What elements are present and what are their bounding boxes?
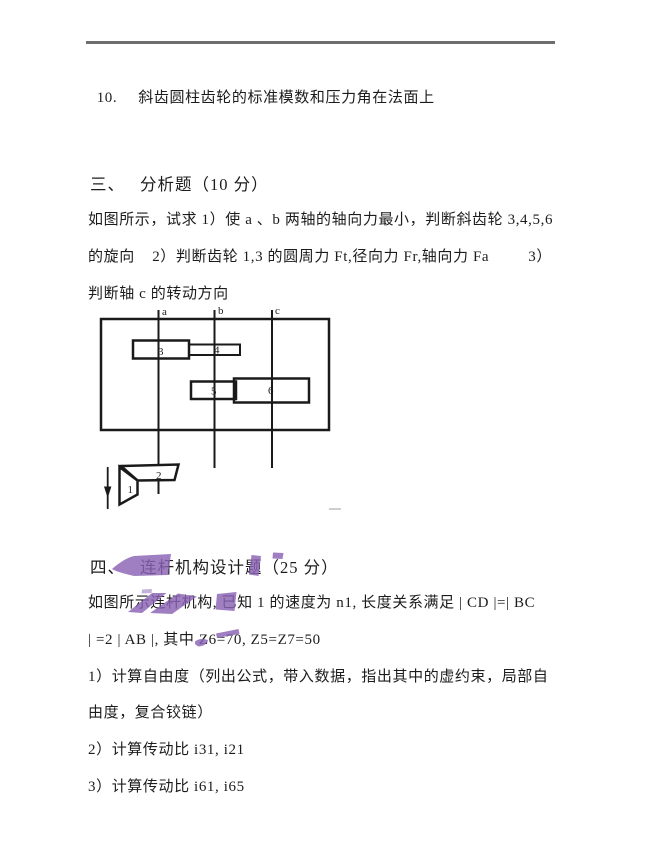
gear1-label: 1 — [128, 484, 134, 496]
shaft-c-label: c — [275, 305, 280, 317]
section4-item1-line1: 1）计算自由度（列出公式，带入数据，指出其中的虚约束，局部自 — [88, 665, 549, 686]
shaft-b-label: b — [218, 305, 224, 317]
shaft-a-label: a — [162, 306, 167, 318]
section4-item2: 2）计算传动比 i31, i21 — [88, 738, 245, 759]
section4-item1-line2: 由度，复合铰链） — [88, 701, 213, 722]
section4-item3: 3）计算传动比 i61, i65 — [88, 775, 245, 796]
gear2-label: 2 — [156, 470, 162, 482]
gear4-label: 4 — [214, 345, 220, 357]
section4-heading-title: 连杆机构设计题（25 分） — [140, 558, 339, 577]
input-arrow-head-icon — [104, 487, 111, 499]
section4-paragraph-line2: | =2 | AB |, 其中 Z6=70, Z5=Z7=50 — [88, 628, 321, 649]
exam-document-page: { "page": { "background": "#ffffff", "te… — [0, 0, 650, 842]
section4-heading-number: 四、 — [90, 558, 125, 577]
section4-heading: 四、连杆机构设计题（25 分） — [90, 554, 339, 578]
section4-paragraph-line1: 如图所示连杆机构, 已知 1 的速度为 n1, 长度关系满足 | CD |=| … — [88, 591, 535, 612]
gear5-label: 5 — [211, 386, 217, 398]
gear3-label: 3 — [158, 346, 164, 358]
gear-train-diagram: a b c 3 4 5 6 2 1 — [0, 0, 650, 530]
gear6-label: 6 — [268, 385, 274, 397]
